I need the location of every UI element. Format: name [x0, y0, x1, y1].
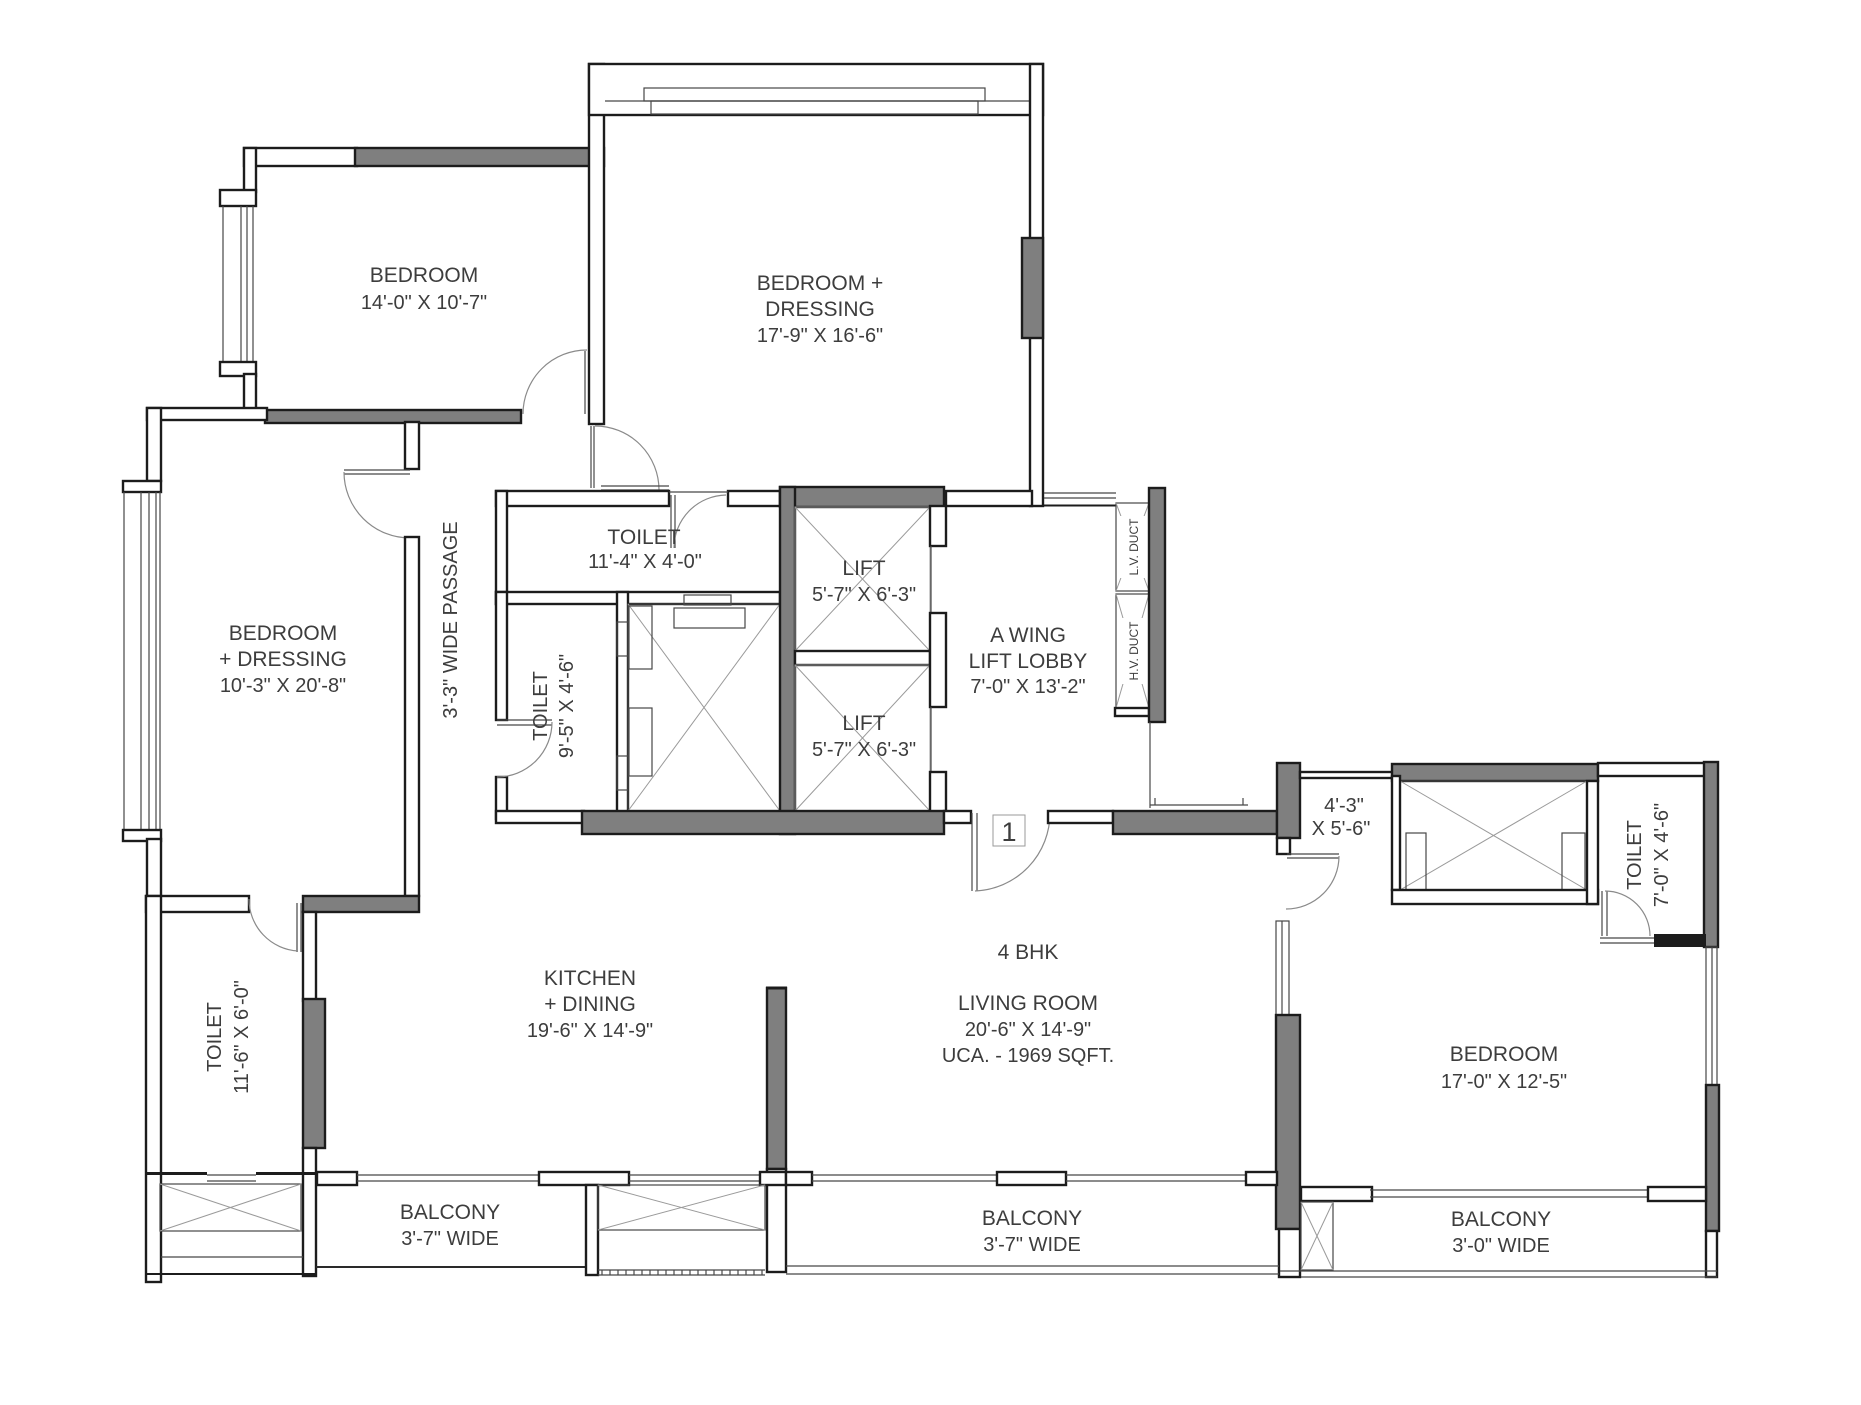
- svg-text:TOILET: TOILET: [1624, 820, 1646, 890]
- svg-text:17'-9" X 16'-6": 17'-9" X 16'-6": [757, 325, 883, 347]
- svg-text:5'-7" X 6'-3": 5'-7" X 6'-3": [812, 739, 916, 761]
- svg-text:BALCONY: BALCONY: [400, 1201, 500, 1224]
- svg-text:14'-0" X 10'-7": 14'-0" X 10'-7": [361, 292, 487, 314]
- svg-text:BALCONY: BALCONY: [982, 1207, 1082, 1230]
- svg-text:LIVING ROOM: LIVING ROOM: [958, 992, 1098, 1015]
- svg-text:7'-0" X 4'-6": 7'-0" X 4'-6": [1651, 803, 1673, 907]
- svg-text:BEDROOM: BEDROOM: [370, 264, 479, 287]
- svg-text:3'-7" WIDE: 3'-7" WIDE: [401, 1228, 499, 1250]
- svg-text:H.V. DUCT: H.V. DUCT: [1127, 621, 1141, 681]
- svg-text:TOILET: TOILET: [204, 1002, 226, 1072]
- svg-text:1: 1: [1001, 817, 1016, 847]
- svg-text:L.V. DUCT: L.V. DUCT: [1127, 518, 1141, 576]
- svg-text:7'-0" X 13'-2": 7'-0" X 13'-2": [970, 676, 1085, 698]
- svg-text:TOILET: TOILET: [530, 671, 552, 741]
- svg-text:5'-7" X 6'-3": 5'-7" X 6'-3": [812, 584, 916, 606]
- svg-text:17'-0" X 12'-5": 17'-0" X 12'-5": [1441, 1071, 1567, 1093]
- svg-text:UCA. - 1969 SQFT.: UCA. - 1969 SQFT.: [942, 1045, 1114, 1067]
- svg-text:4 BHK: 4 BHK: [998, 941, 1059, 964]
- svg-text:3'-7" WIDE: 3'-7" WIDE: [983, 1234, 1081, 1256]
- svg-text:4'-3": 4'-3": [1324, 795, 1364, 817]
- svg-text:LIFT: LIFT: [842, 712, 885, 735]
- svg-text:19'-6" X 14'-9": 19'-6" X 14'-9": [527, 1020, 653, 1042]
- svg-text:20'-6" X 14'-9": 20'-6" X 14'-9": [965, 1019, 1091, 1041]
- svg-text:3'-3" WIDE PASSAGE: 3'-3" WIDE PASSAGE: [440, 521, 462, 718]
- svg-text:LIFT LOBBY: LIFT LOBBY: [969, 650, 1088, 673]
- svg-text:BEDROOM +: BEDROOM +: [757, 272, 884, 295]
- svg-text:TOILET: TOILET: [607, 526, 680, 549]
- svg-text:BALCONY: BALCONY: [1451, 1208, 1551, 1231]
- svg-text:BEDROOM: BEDROOM: [1450, 1043, 1559, 1066]
- svg-text:11'-6" X 6'-0": 11'-6" X 6'-0": [231, 980, 253, 1094]
- svg-text:DRESSING: DRESSING: [765, 298, 875, 321]
- svg-text:KITCHEN: KITCHEN: [544, 967, 636, 990]
- svg-text:+ DINING: + DINING: [544, 993, 636, 1016]
- svg-text:A WING: A WING: [990, 624, 1066, 647]
- svg-text:10'-3" X 20'-8": 10'-3" X 20'-8": [220, 675, 346, 697]
- svg-text:X 5'-6": X 5'-6": [1312, 818, 1371, 840]
- svg-text:3'-0" WIDE: 3'-0" WIDE: [1452, 1235, 1550, 1257]
- svg-text:+ DRESSING: + DRESSING: [219, 648, 347, 671]
- svg-text:BEDROOM: BEDROOM: [229, 622, 338, 645]
- svg-text:LIFT: LIFT: [842, 557, 885, 580]
- svg-text:11'-4" X 4'-0": 11'-4" X 4'-0": [588, 551, 702, 573]
- svg-text:9'-5" X 4'-6": 9'-5" X 4'-6": [556, 654, 578, 758]
